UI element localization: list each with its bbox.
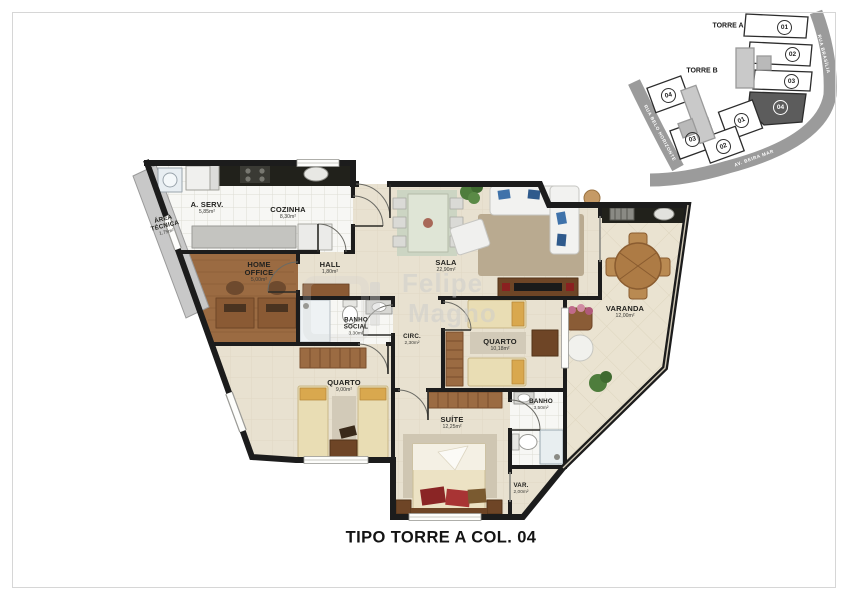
room-label-banho-suite: BANHO 3,50m²: [529, 399, 553, 411]
room-label-quarto-2: QUARTO 10,18m²: [483, 338, 517, 352]
room-label-area-tecnica: ÁREA TÉCNICA 1,75m²: [144, 212, 185, 240]
street-label-rua-brasilia: RUA BRASÍLIA: [817, 34, 832, 74]
site-unit-b-04: 04: [659, 86, 677, 104]
site-unit-b-03: 03: [683, 130, 701, 148]
site-unit-a-04: 04: [773, 100, 788, 115]
site-unit-b-02: 02: [714, 137, 734, 157]
room-label-cozinha: COZINHA 8,30m²: [270, 206, 306, 220]
site-unit-a-03: 03: [784, 74, 799, 89]
room-label-sala: SALA 22,90m²: [435, 259, 456, 273]
street-label-av-beira-mar: AV. BEIRA MAR: [733, 148, 774, 167]
room-label-banho-social: BANHO SOCIAL 3,30m²: [334, 317, 378, 336]
room-label-varanda: VARANDA 12,00m²: [606, 305, 644, 319]
plan-title: TIPO TORRE A COL. 04: [346, 529, 537, 548]
street-label-rua-belo-horizonte: RUA BELO HORIZONTE: [643, 104, 677, 162]
room-label-suite: SUÍTE 12,25m²: [440, 416, 463, 430]
room-label-circ: CIRC. 2,30m²: [403, 334, 421, 346]
site-unit-a-01: 01: [777, 20, 792, 35]
room-label-area-servico: A. SERV. 5,85m²: [191, 201, 224, 215]
room-label-quarto-1: QUARTO 9,00m²: [327, 379, 361, 393]
site-unit-b-01: 01: [732, 111, 752, 131]
room-label-var: VAR. 2,00m²: [513, 483, 528, 495]
torre-b-label: TORRE B: [686, 68, 717, 75]
labels-layer: A. SERV. 5,85m² COZINHA 8,30m² ÁREA TÉCN…: [0, 0, 848, 600]
room-label-home-office: HOME OFFICE 5,00m²: [236, 261, 282, 283]
floor-plan-page: Felipe Magno A. SERV. 5,85m² COZINHA 8,3…: [0, 0, 848, 600]
site-unit-a-02: 02: [785, 47, 800, 62]
torre-a-label: TORRE A: [712, 23, 743, 30]
room-label-hall: HALL 1,80m²: [320, 261, 341, 275]
